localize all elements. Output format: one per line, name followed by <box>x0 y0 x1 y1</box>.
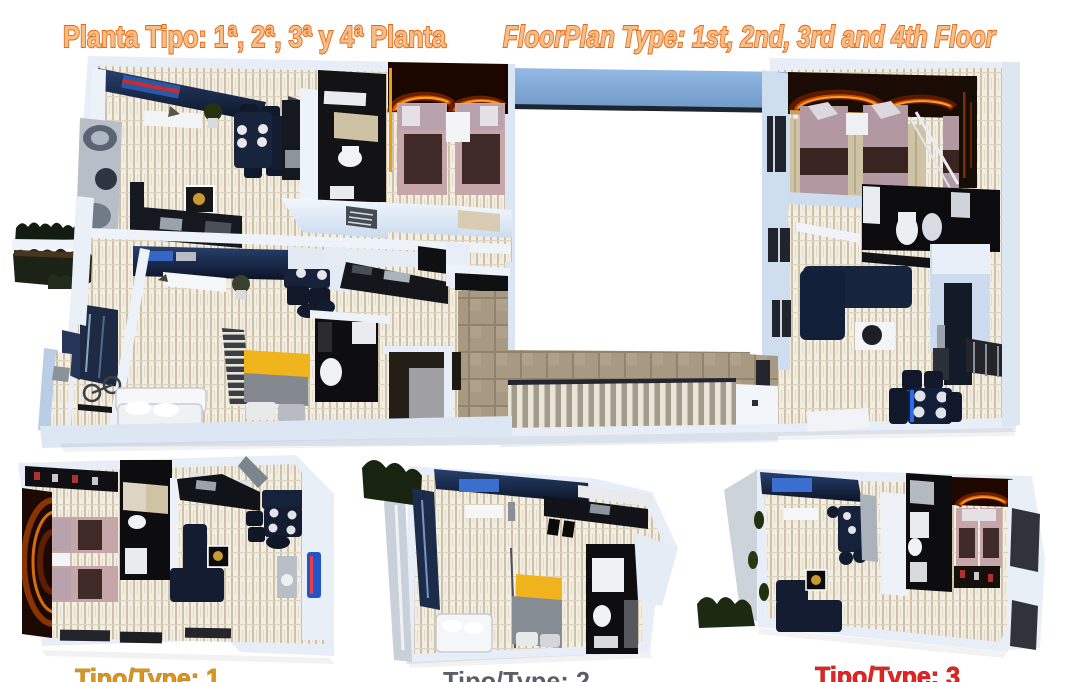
svg-text:FloorPlan Type: 1st, 2nd, 3rd: FloorPlan Type: 1st, 2nd, 3rd and 4th Fl… <box>503 19 997 54</box>
svg-text:Tipo/Type: 2: Tipo/Type: 2 <box>443 666 590 682</box>
svg-text:Planta Tipo: 1ª, 2ª, 3ª y 4ª P: Planta Tipo: 1ª, 2ª, 3ª y 4ª Planta <box>63 19 447 54</box>
svg-text:Tipo/Type: 1: Tipo/Type: 1 <box>75 663 220 682</box>
svg-text:Tipo/Type: 3: Tipo/Type: 3 <box>815 661 960 682</box>
